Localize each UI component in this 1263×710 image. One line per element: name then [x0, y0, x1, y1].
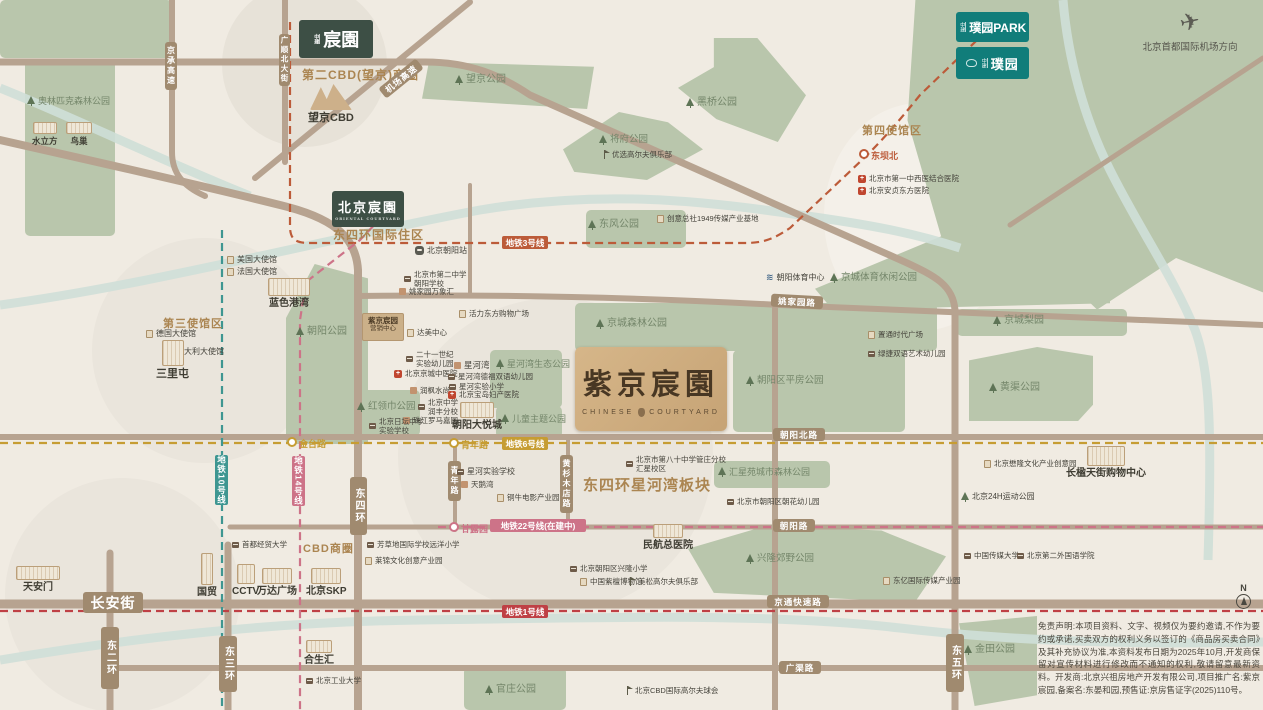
poi-xinglong-primary: 北京朝阳区兴隆小学: [570, 564, 648, 573]
poi-label: 二十一世纪实验幼儿园: [416, 350, 454, 368]
jc-sports-park-icon: [830, 273, 838, 283]
poi-label: 芳草地国际学校远洋小学: [377, 540, 460, 549]
cbd-golf-icon: [624, 686, 632, 695]
zitan-museum-icon: [580, 578, 587, 586]
poi-label: 朝阳区平房公园: [757, 375, 824, 386]
metro-station: 金台路: [287, 437, 326, 450]
poi-xhw-kindergarten: 星河湾德福双语幼儿园: [448, 372, 533, 381]
poi-meisong-golf: 美松高尔夫俱乐部: [627, 577, 698, 586]
poi-jintian-park: 金田公园: [964, 644, 1015, 656]
poi-label-line2: 实验学校: [379, 426, 424, 435]
compass: N: [1236, 583, 1251, 609]
metro-station-icon: [449, 438, 459, 448]
poi-label: 鸟巢: [70, 136, 87, 146]
poi-sanlitun: 三里屯: [156, 340, 189, 381]
poi-zhitong-plaza: 置通时代广场: [868, 330, 923, 339]
poi-changying-mall: 长楹天街购物中心: [1066, 446, 1146, 480]
metro-line-badge: 地铁6号线: [502, 437, 548, 450]
road-badge: 京承高速: [165, 42, 177, 90]
poi-us-embassy: 美国大使馆: [227, 255, 277, 265]
poi-cy-sports-center: ≋朝阳体育中心: [766, 272, 825, 283]
poi-xinghe-exp-school: 星河实验学校: [457, 467, 515, 477]
minhang-hospital-icon: [653, 524, 683, 538]
poi-label: 北京市第二中学朝阳学校: [414, 270, 467, 288]
poi-xinghewan: 星河湾: [454, 360, 490, 370]
24h-sports-park-icon: [961, 492, 969, 502]
compass-icon: [1236, 594, 1251, 609]
logo-prefix: 中建: [959, 22, 967, 32]
xh-primary-icon: [449, 384, 456, 390]
logo-name: 璞园: [991, 54, 1019, 73]
youxuan-golf-icon: [601, 150, 609, 159]
poi-jiangfu-park: 将府公园: [599, 134, 648, 145]
poi-label: 北京宝岛妇产医院: [459, 390, 519, 399]
metro-station-icon: [287, 437, 297, 447]
poi-label: 星河湾: [464, 360, 490, 370]
poi-tianewan: 天鹅湾: [461, 480, 494, 489]
road-badge: 姚家园路: [771, 294, 824, 310]
poi-tongniu-film: 铜牛电影产业园: [497, 493, 560, 502]
property-subtitle-right: COURTYARD: [649, 409, 720, 416]
poi-dongyi-media: 东亿国际传媒产业园: [883, 576, 961, 585]
metro-station-label: 金台路: [299, 437, 326, 450]
meisong-golf-icon: [627, 577, 635, 586]
maolong-culture-icon: [984, 460, 991, 468]
chaohua-kind-icon: [727, 499, 734, 505]
poi-fangcaodi-school: 芳草地国际学校远洋小学: [367, 540, 460, 549]
poi-xhw-eco-park: 星河湾生态公园: [496, 359, 570, 370]
huoli-mall-icon: [459, 310, 466, 318]
cloud-icon: [966, 59, 977, 67]
poi-huangqu-park: 黄渠公园: [989, 382, 1040, 394]
poi-label: 莱锦文化创意产业园: [375, 556, 443, 565]
airplane-icon: ✈: [1177, 6, 1203, 39]
poi-laijin-culture: 莱锦文化创意产业园: [365, 556, 443, 565]
poi-de-embassy: 德国大使馆: [146, 329, 196, 339]
location-map: 中建 宸園 北京宸園 ORIENTAL COURTYARD 中建 璞园PARK …: [0, 0, 1263, 710]
yjy-mixc-icon: [399, 288, 406, 295]
heiqiao-park-icon: [686, 98, 694, 108]
property-subtitle: CHINESE COURTYARD: [582, 408, 720, 417]
poi-pingfang-park: 朝阳区平房公园: [746, 375, 824, 386]
marketing-center-badge: 紫京宸园 营销中心: [362, 313, 404, 341]
poi-label: 国贸: [197, 587, 217, 599]
poi-water-cube: 水立方: [32, 122, 58, 146]
poi-joy-city: 朝阳大悦城: [452, 402, 502, 432]
poi-label-line2: 实验幼儿园: [416, 359, 454, 368]
birds-nest-icon: [66, 122, 92, 134]
chuangyi-1949-icon: [657, 215, 664, 223]
poi-label: 绿捷双语艺术幼儿园: [878, 349, 946, 358]
poi-honglingjin-park: 红领巾公园: [357, 401, 416, 412]
poi-anzhen-hospital: 北京安贞东方医院: [858, 186, 929, 195]
xhw-eco-park-icon: [496, 359, 504, 369]
poi-label: 北京SKP: [306, 586, 347, 598]
joy-city-icon: [460, 402, 494, 418]
wanda-plaza-icon: [262, 568, 292, 584]
road-badge: 东五环: [946, 634, 964, 692]
poi-label: 红领巾公园: [368, 401, 416, 412]
poi-label: 东亿国际传媒产业园: [893, 576, 961, 585]
logo-prefix: 中建: [313, 34, 321, 44]
poi-label: 将府公园: [610, 134, 648, 145]
poi-huixing-park: 汇星苑城市森林公园: [718, 467, 810, 478]
poi-label: 北京第二外国语学院: [1027, 551, 1095, 560]
hopson-one-icon: [306, 640, 332, 653]
metro-line-badge: 地铁22号线(在建中): [490, 519, 586, 532]
poi-baodao-hospital: 北京宝岛妇产医院: [448, 390, 519, 399]
poi-kids-theme-park: 儿童主题公园: [501, 414, 566, 425]
metro-station-label: 甘露园: [461, 522, 488, 535]
poi-label: 北京市朝阳区朝花幼儿园: [737, 497, 820, 506]
poi-label: 望京CBD: [308, 112, 354, 125]
bj-chaoyang-station-icon: [415, 246, 424, 255]
poi-label: 北京24H运动公园: [972, 492, 1035, 502]
poi-label: 奥林匹克森林公园: [38, 96, 110, 107]
jingcheng-tcm-icon: [394, 370, 402, 378]
poi-no2-middle-school: 北京市第二中学朝阳学校: [404, 270, 467, 288]
ritan-school-icon: [369, 423, 376, 429]
metro-station: 东坝北: [859, 149, 898, 162]
shoujingmao-univ-icon: [232, 542, 239, 548]
olympic-forest-park-icon: [27, 96, 35, 106]
poi-birds-nest: 鸟巢: [66, 122, 92, 146]
poi-bisu-univ: 北京第二外国语学院: [1017, 551, 1095, 560]
area-label-xinghewan-block: 东四环星河湾板块: [583, 474, 711, 495]
bisu-univ-icon: [1017, 553, 1024, 559]
marketing-badge-subtitle: 营销中心: [363, 325, 403, 333]
property-title: 紫京宸園: [583, 361, 719, 403]
baodao-hospital-icon: [448, 391, 456, 399]
poi-cbd-golf: 北京CBD国际高尔夫球会: [624, 686, 718, 695]
fr-embassy-icon: [227, 268, 234, 276]
runfeng-icon: [410, 387, 417, 394]
road-badge: 长安街: [83, 592, 143, 613]
poi-label: 京城体育休闲公园: [841, 272, 917, 283]
poi-label: 铜牛电影产业园: [507, 493, 560, 502]
tianewan-icon: [461, 481, 468, 488]
poi-lvjie-kind: 绿捷双语艺术幼儿园: [868, 349, 946, 358]
poi-runfeng: 润枫水尚: [410, 386, 450, 395]
poi-beijing-skp: 北京SKP: [306, 568, 347, 598]
poi-label: 三里屯: [156, 368, 189, 381]
poi-guanzhuang-park: 官庄公园: [485, 684, 536, 696]
poi-label: 朝阳体育中心: [777, 273, 825, 283]
zhitong-plaza-icon: [868, 331, 875, 339]
beijing-chenyuan-logo: 北京宸園 ORIENTAL COURTYARD: [332, 191, 404, 227]
poi-label: 金田公园: [975, 644, 1015, 656]
chaoyang-park-icon: [296, 327, 304, 337]
road-badge: 广顺北大街: [279, 34, 290, 86]
cy-sports-center-icon: ≋: [766, 272, 774, 283]
logo-name: 璞园PARK: [969, 19, 1026, 36]
poi-label: 黄渠公园: [1000, 382, 1040, 394]
dongyi-media-icon: [883, 577, 890, 585]
poi-label: 朝阳公园: [307, 326, 347, 338]
pingfang-park-icon: [746, 376, 754, 386]
poi-label: 天安门: [23, 582, 53, 594]
poi-xinglong-country-park: 兴隆郊野公园: [746, 553, 814, 564]
logo-subtitle: ORIENTAL COURTYARD: [335, 217, 401, 221]
poi-label: CCTV: [232, 586, 259, 598]
metro-station: 青年路: [449, 438, 488, 451]
logo-name: 北京宸園: [338, 197, 398, 216]
bj-zhongxue-icon: [418, 404, 425, 410]
solana-icon: [268, 278, 310, 296]
guomao-icon: [201, 553, 213, 585]
airport-direction: ✈ 北京首都国际机场方向: [1125, 8, 1255, 53]
poi-label: 美国大使馆: [237, 255, 277, 265]
poi-ritan-school: 北京日坛中学实验学校: [369, 417, 424, 435]
poi-label: 北京懋隆文化产业创意园: [994, 459, 1077, 468]
area-label-dsh-intl: 东四环国际住区: [333, 226, 424, 243]
poi-label: 北京工业大学: [316, 676, 361, 685]
kids-theme-park-icon: [501, 414, 509, 424]
poi-label: 黑桥公园: [697, 97, 737, 109]
logo-prefix: 中建: [980, 58, 988, 68]
marketing-badge-title: 紫京宸园: [363, 316, 403, 325]
poi-first-tcm-hospital: 北京市第一中西医结合医院: [858, 174, 959, 183]
xinghewan-icon: [454, 362, 461, 369]
poi-hopson-one: 合生汇: [304, 640, 334, 667]
poi-label: 法国大使馆: [237, 267, 277, 277]
disclaimer-text: 免责声明:本项目资料、文字、视频仅为要约邀请,不作为要约或承诺,买卖双方的权利义…: [1038, 620, 1260, 697]
poi-huoli-mall: 活力东方购物广场: [459, 309, 529, 318]
huangqu-park-icon: [989, 383, 997, 393]
poi-label: 东风公园: [599, 219, 639, 231]
metro-station: 甘露园: [449, 522, 488, 535]
poi-wangjing-park: 望京公园: [455, 74, 506, 86]
puyuan-park-logo: 中建 璞园PARK: [956, 12, 1029, 42]
poi-label: 长楹天街购物中心: [1066, 468, 1146, 480]
poi-label: 星河湾生态公园: [507, 359, 570, 370]
poi-youxuan-golf: 优选高尔夫俱乐部: [601, 150, 672, 159]
poi-label: 优选高尔夫俱乐部: [612, 150, 672, 159]
bjut-univ-icon: [306, 678, 313, 684]
jingcheng-liyuan-icon: [993, 316, 1001, 326]
compass-n-label: N: [1236, 583, 1251, 593]
poi-label: 星河湾德福双语幼儿园: [458, 372, 533, 381]
poi-label: 活力东方购物广场: [469, 309, 529, 318]
beijing-skp-icon: [311, 568, 341, 584]
poi-label: 水立方: [32, 136, 58, 146]
poi-21century-kind: 二十一世纪实验幼儿园: [406, 350, 454, 368]
jiangfu-park-icon: [599, 135, 607, 145]
poi-label: 北京市第八十中学管庄分校汇星校区: [636, 455, 726, 473]
poi-label: 兴隆郊野公园: [757, 553, 814, 564]
poi-label: 京城森林公园: [607, 318, 667, 330]
lvjie-kind-icon: [868, 351, 875, 357]
no2-middle-school-icon: [404, 276, 411, 282]
vase-icon: [638, 408, 645, 417]
poi-label: 置通时代广场: [878, 330, 923, 339]
property-subtitle-left: CHINESE: [582, 409, 634, 416]
area-label-fourth-embassy: 第四使馆区: [862, 122, 922, 138]
poi-label: 姚家园万象汇: [409, 287, 454, 296]
poi-label: 合生汇: [304, 655, 334, 667]
poi-label: 美松高尔夫俱乐部: [638, 577, 698, 586]
xinglong-primary-icon: [570, 566, 577, 572]
poi-no80-school: 北京市第八十中学管庄分校汇星校区: [626, 455, 726, 473]
logo-name: 宸園: [323, 26, 359, 52]
changying-mall-icon: [1087, 446, 1125, 466]
metro-station-label: 东坝北: [871, 149, 898, 162]
no80-school-icon: [626, 461, 633, 467]
poi-label: 德国大使馆: [156, 329, 196, 339]
poi-label: 官庄公园: [496, 684, 536, 696]
poi-bjut-univ: 北京工业大学: [306, 676, 361, 685]
poi-label: 民航总医院: [643, 540, 693, 552]
21century-kind-icon: [406, 356, 413, 362]
laijin-culture-icon: [365, 557, 372, 565]
jintian-park-icon: [964, 645, 972, 655]
first-tcm-hospital-icon: [858, 175, 866, 183]
poi-label: 北京日坛中学实验学校: [379, 417, 424, 435]
poi-label: 创意总社1949传媒产业基地: [667, 214, 759, 223]
road-badge: 东四环: [350, 477, 367, 535]
poi-label: 首都经贸大学: [242, 540, 287, 549]
poi-label: 北京市第一中西医结合医院: [869, 174, 959, 183]
metro-station-label: 青年路: [461, 438, 488, 451]
poi-label: 北京CBD国际高尔夫球会: [635, 686, 718, 695]
anzhen-hospital-icon: [858, 187, 866, 195]
poi-label: 北京朝阳区兴隆小学: [580, 564, 648, 573]
poi-wangjing-cbd: 望京CBD: [308, 84, 354, 125]
xinglong-country-park-icon: [746, 554, 754, 564]
poi-fr-embassy: 法国大使馆: [227, 267, 277, 277]
poi-yjy-mixc: 姚家园万象汇: [399, 287, 454, 296]
poi-jc-sports-park: 京城体育休闲公园: [830, 272, 917, 283]
area-label-cbd: CBD商圈: [303, 540, 354, 556]
poi-jingcheng-liyuan: 京城梨园: [993, 315, 1044, 327]
poi-solana: 蓝色港湾: [268, 278, 310, 310]
road-badge: 东二环: [101, 627, 119, 689]
poi-wanda-plaza: 万达广场: [257, 568, 297, 598]
road-badge: 黄杉木店路: [560, 455, 573, 513]
poi-label: 万达广场: [257, 586, 297, 598]
road-badge: 京通快速路: [767, 595, 829, 608]
poi-dongfeng-park: 东风公园: [588, 219, 639, 231]
metro-line-badge: 地铁1号线: [502, 605, 548, 618]
xhw-kindergarten-icon: [448, 374, 455, 380]
water-cube-icon: [33, 122, 57, 134]
poi-cctv: CCTV: [232, 564, 259, 598]
de-embassy-icon: [146, 330, 153, 338]
poi-jingcheng-forest: 京城森林公园: [596, 318, 667, 330]
road-badge: 广渠路: [779, 661, 821, 674]
road-badge: 东三环: [219, 636, 237, 692]
dongfeng-park-icon: [588, 220, 596, 230]
poi-label: 望京公园: [466, 74, 506, 86]
poi-label: 朝阳大悦城: [452, 420, 502, 432]
poi-chaohua-kind: 北京市朝阳区朝花幼儿园: [727, 497, 820, 506]
poi-shoujingmao-univ: 首都经贸大学: [232, 540, 287, 549]
damei-center-icon: [407, 329, 414, 337]
metro-line-badge: 地铁3号线: [502, 236, 548, 249]
metro-station-icon: [449, 522, 459, 532]
poi-maolong-culture: 北京懋隆文化产业创意园: [984, 459, 1077, 468]
cctv-icon: [237, 564, 255, 584]
poi-label: 天鹅湾: [471, 480, 494, 489]
wangjing-cbd-icon: [310, 84, 352, 110]
poi-heiqiao-park: 黑桥公园: [686, 97, 737, 109]
cuc-univ-icon: [964, 553, 971, 559]
puyuan-logo: 中建 璞园: [956, 47, 1029, 79]
poi-minhang-hospital: 民航总医院: [643, 524, 693, 552]
poi-chaoyang-park: 朝阳公园: [296, 326, 347, 338]
poi-label-line2: 汇星校区: [636, 464, 726, 473]
xinghe-exp-school-icon: [457, 469, 464, 475]
honglingjin-park-icon: [357, 402, 365, 412]
metro-line-badge: 地铁14号线: [292, 456, 305, 506]
poi-damei-center: 达美中心: [407, 328, 447, 337]
poi-label: 京城梨园: [1004, 315, 1044, 327]
us-embassy-icon: [227, 256, 234, 264]
airport-direction-label: 北京首都国际机场方向: [1125, 39, 1255, 53]
poi-24h-sports-park: 北京24H运动公园: [961, 492, 1035, 502]
tongniu-film-icon: [497, 494, 504, 502]
poi-label: 汇星苑城市森林公园: [729, 467, 810, 478]
sanlitun-icon: [162, 340, 184, 366]
road-badge: 朝阳路: [773, 519, 815, 532]
poi-label: 北京朝阳站: [427, 246, 467, 256]
poi-guomao: 国贸: [197, 553, 217, 599]
metro-line-badge: 地铁10号线: [215, 455, 228, 505]
poi-chuangyi-1949: 创意总社1949传媒产业基地: [657, 214, 759, 223]
poi-cuc-univ: 中国传媒大学: [964, 551, 1019, 560]
poi-label: 星河实验学校: [467, 467, 515, 477]
road-badge: 朝阳北路: [773, 428, 825, 441]
guanzhuang-park-icon: [485, 685, 493, 695]
poi-label: 达美中心: [417, 328, 447, 337]
poi-label: 北京安贞东方医院: [869, 186, 929, 195]
jingcheng-forest-icon: [596, 319, 604, 329]
tiananmen-icon: [16, 566, 60, 580]
poi-olympic-forest-park: 奥林匹克森林公园: [27, 96, 110, 107]
poi-label: 润枫水尚: [420, 386, 450, 395]
poi-tiananmen: 天安门: [16, 566, 60, 594]
property-card-zijing-chenyuan: 紫京宸園 CHINESE COURTYARD: [575, 347, 727, 431]
chenyuan-logo: 中建 宸園: [299, 20, 373, 58]
poi-label: 中国传媒大学: [974, 551, 1019, 560]
poi-bj-chaoyang-station: 北京朝阳站: [415, 246, 467, 256]
wangjing-park-icon: [455, 75, 463, 85]
fangcaodi-school-icon: [367, 542, 374, 548]
poi-label: 儿童主题公园: [512, 414, 566, 425]
metro-station-icon: [859, 149, 869, 159]
poi-label: 蓝色港湾: [269, 298, 309, 310]
